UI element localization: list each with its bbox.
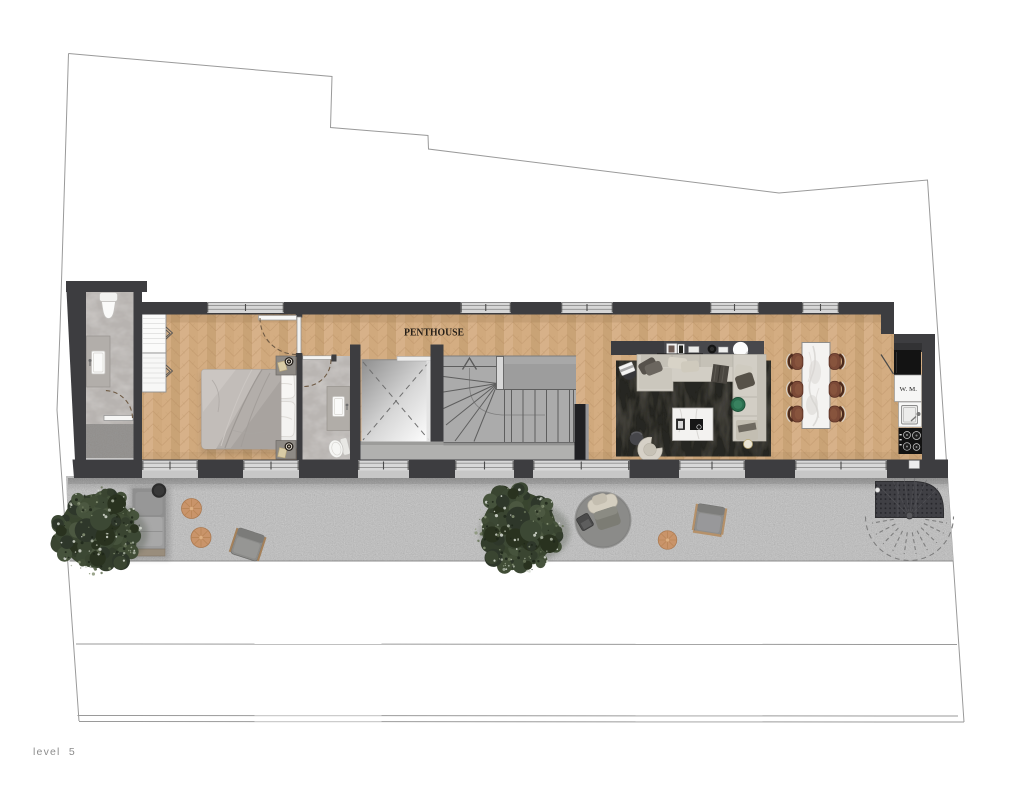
svg-text:level 5: level 5 bbox=[33, 746, 76, 758]
svg-text:PENTHOUSE: PENTHOUSE bbox=[404, 328, 464, 339]
svg-text:W. M.: W. M. bbox=[900, 386, 918, 393]
